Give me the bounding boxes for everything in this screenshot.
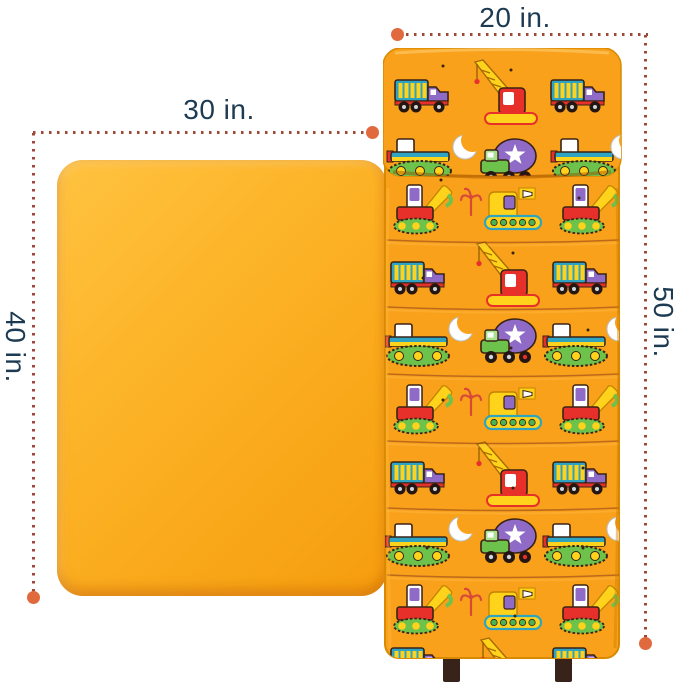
mat-length-dimension-line xyxy=(644,35,647,643)
blanket-width-label: 30 in. xyxy=(159,94,279,126)
mat-width-endpoint-dot xyxy=(391,28,404,41)
mat-length-endpoint-dot xyxy=(639,637,652,650)
blanket-width-dimension-line xyxy=(33,131,373,134)
blanket-length-endpoint-dot xyxy=(27,591,40,604)
pillow xyxy=(383,48,623,183)
mat-length-label: 50 in. xyxy=(647,277,679,367)
blanket-length-dimension-line xyxy=(32,133,35,595)
nap-mat xyxy=(383,48,623,685)
product-dimension-image: 20 in. 50 in. 30 in. 40 in. xyxy=(0,0,679,685)
mat-width-label: 20 in. xyxy=(455,2,575,34)
blanket xyxy=(57,160,387,596)
blanket-length-label: 40 in. xyxy=(0,302,31,392)
mat-width-dimension-line xyxy=(398,33,648,36)
blanket-width-endpoint-dot xyxy=(366,126,379,139)
